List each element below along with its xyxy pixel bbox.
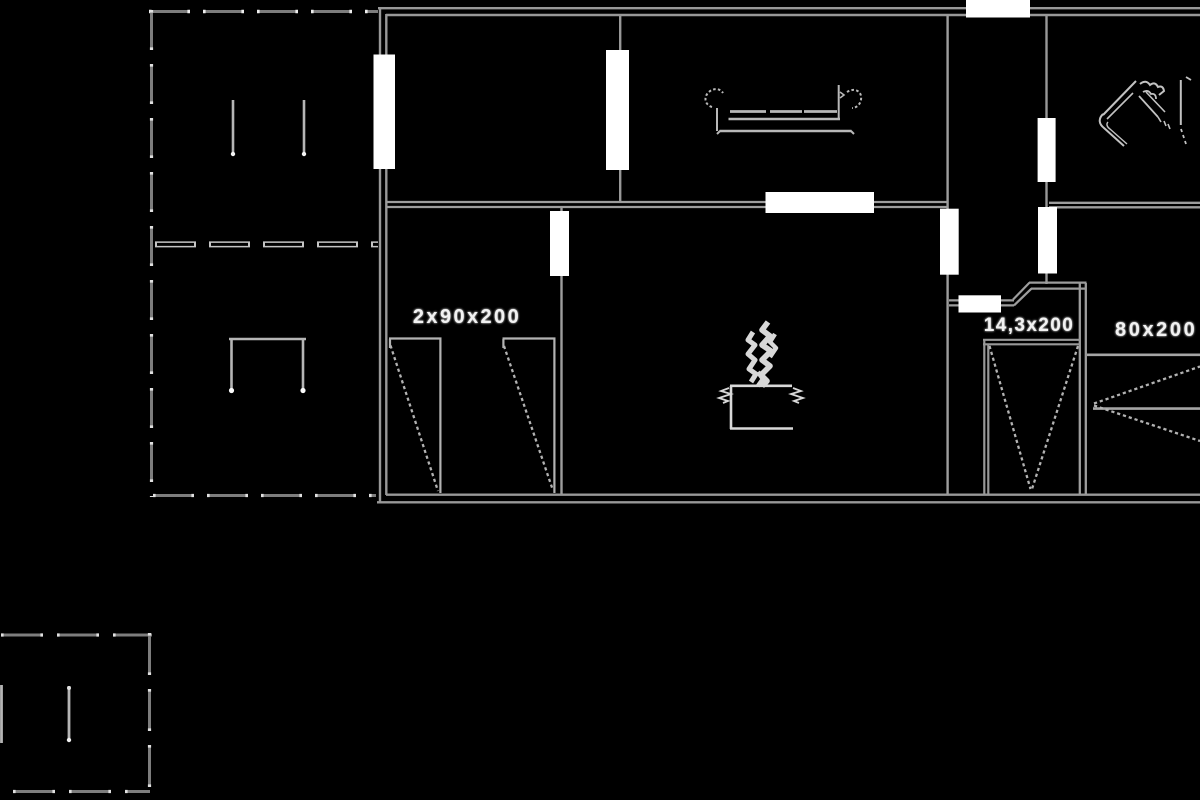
svg-text:2x90x200: 2x90x200: [413, 306, 521, 328]
svg-text:14,3x200: 14,3x200: [984, 315, 1074, 336]
svg-text:80x200: 80x200: [1115, 319, 1197, 341]
